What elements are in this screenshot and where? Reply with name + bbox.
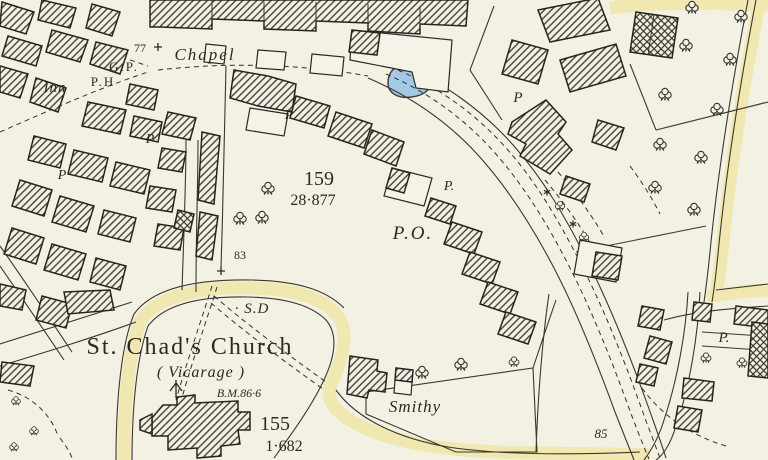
- label-parcel-83: 83: [234, 248, 246, 262]
- outbuilding: [310, 54, 344, 76]
- label-pump-near-po: P.: [443, 179, 454, 194]
- building: [636, 364, 658, 386]
- label-pump-center: P: [284, 108, 294, 123]
- outbuilding: [256, 50, 286, 70]
- label-bench-height: 77: [134, 41, 146, 55]
- label-guide-post: G.P.: [109, 59, 139, 74]
- building: [692, 302, 712, 322]
- map-canvas: 77 Chapel G.P. Inn P.H P P P P. P P. 159…: [0, 0, 768, 460]
- label-parcel-159: 159: [304, 168, 334, 190]
- building: [162, 112, 196, 140]
- building: [630, 12, 678, 58]
- label-chapel: Chapel: [174, 45, 235, 64]
- building: [174, 210, 194, 232]
- label-parcel-155-area: 1·682: [265, 438, 302, 455]
- building: [146, 186, 176, 212]
- label-pump-left-lower: P: [57, 168, 67, 183]
- building: [395, 368, 413, 382]
- building: [644, 336, 672, 364]
- label-parcel-159-area: 28·877: [290, 192, 335, 209]
- building: [682, 378, 714, 401]
- label-sundial: · S.D: [235, 301, 270, 317]
- label-post-office: P.O.: [392, 223, 433, 244]
- label-vicarage: ( Vicarage ): [157, 364, 245, 381]
- label-inn: Inn: [43, 80, 67, 96]
- bottom-right-road: [707, 290, 768, 297]
- label-public-house: P.H: [91, 74, 115, 89]
- building: [748, 322, 768, 378]
- label-church-name: St. Chad's Church: [87, 334, 294, 360]
- vicarage-outbuilding: [64, 290, 114, 314]
- label-parcel-155: 155: [260, 413, 290, 435]
- label-smithy: Smithy: [389, 397, 441, 416]
- label-pump-bottom-right: P.: [718, 330, 730, 346]
- label-parcel-85: 85: [595, 426, 609, 441]
- building: [0, 362, 34, 386]
- building: [592, 252, 622, 280]
- label-pump-left-upper: P: [145, 132, 155, 147]
- map-viewport: 77 Chapel G.P. Inn P.H P P P P. P P. 159…: [0, 0, 768, 460]
- label-pump-right-upper: P: [512, 90, 522, 106]
- building: [638, 306, 664, 330]
- label-benchmark: B.M.86·6: [217, 386, 261, 400]
- building: [349, 30, 380, 55]
- building: [158, 148, 186, 172]
- building: [674, 406, 702, 432]
